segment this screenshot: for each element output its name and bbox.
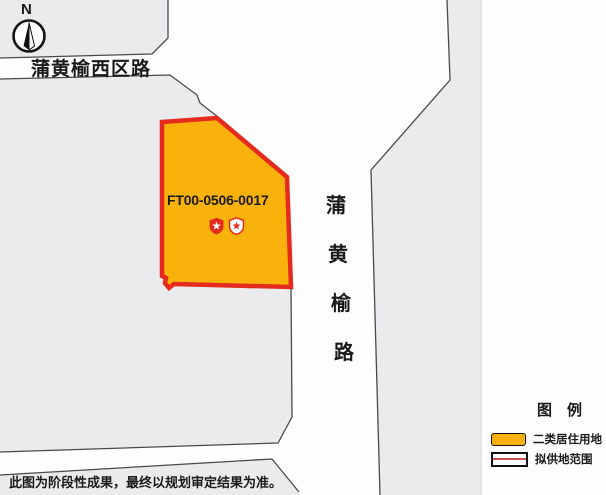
legend-red-line (493, 458, 526, 460)
compass-north-label: N (21, 1, 32, 18)
red-shield-white-star-icon (208, 217, 225, 235)
planning-map: N 蒲黄榆西区路 FT00-0506-0017 蒲 黄 榆 路 图 例 二类居住… (0, 0, 606, 495)
white-shield-red-star-icon (228, 217, 245, 235)
parcel-code-label: FT00-0506-0017 (167, 192, 269, 208)
block-right (371, 0, 481, 495)
legend-item-residential: 二类居住用地 (491, 431, 602, 447)
compass-icon (9, 17, 49, 57)
road-char: 蒲 (326, 196, 354, 217)
legend-title: 图 例 (537, 399, 582, 420)
legend-item-supply-boundary: 拟供地范围 (491, 451, 593, 467)
footnote-disclaimer: 此图为阶段性成果，最终以规划审定结果为准。 (9, 472, 282, 491)
legend-item-label: 二类居住用地 (533, 431, 602, 447)
legend-item-label: 拟供地范围 (535, 451, 593, 467)
road-char: 榆 (331, 294, 354, 315)
legend-swatch-residential-icon (491, 433, 526, 446)
legend-swatch-supply-boundary-icon (491, 452, 528, 467)
road-char: 黄 (328, 245, 354, 266)
road-label-puhuangyu: 蒲 黄 榆 路 (326, 196, 354, 392)
road-char: 路 (334, 343, 354, 364)
road-label-puhuangyu-west-district: 蒲黄榆西区路 (31, 54, 151, 81)
parcel-badges (208, 217, 245, 235)
